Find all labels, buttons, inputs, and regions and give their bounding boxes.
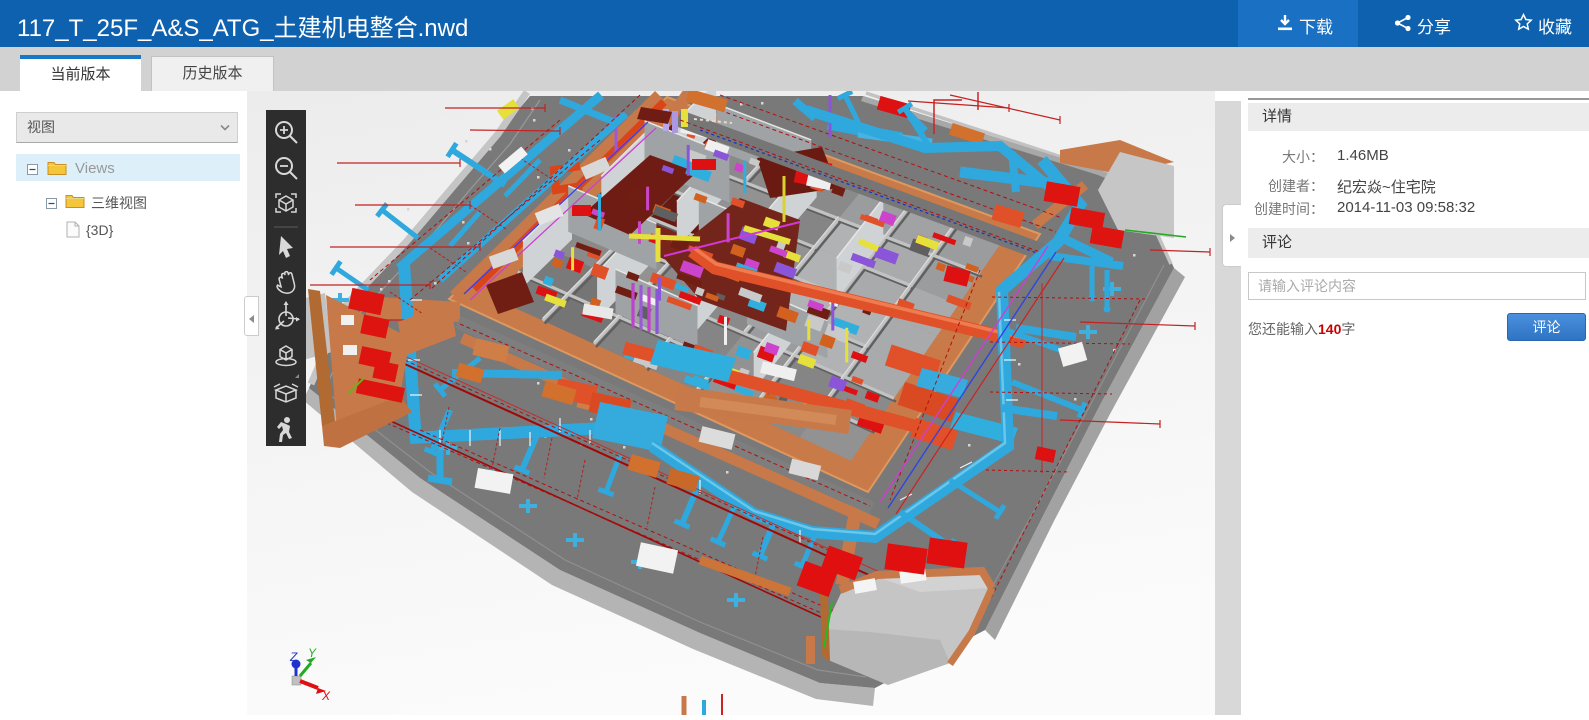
svg-text:Z: Z [289, 650, 298, 664]
svg-text:X: X [321, 689, 331, 703]
svg-text:Y: Y [308, 646, 317, 660]
